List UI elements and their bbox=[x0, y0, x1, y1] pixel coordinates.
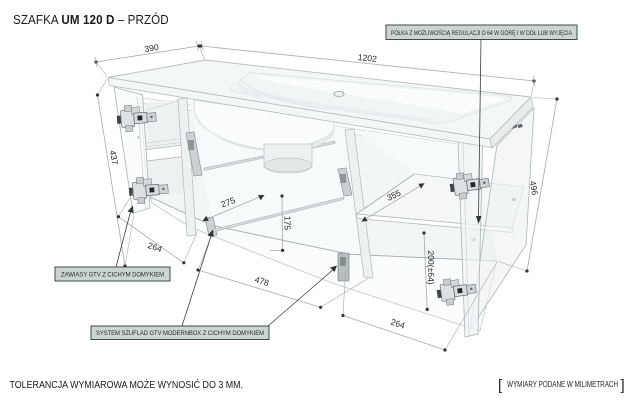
svg-text:PÓŁKA Z MOŻLIWOŚCIĄ REGULACJI: PÓŁKA Z MOŻLIWOŚCIĄ REGULACJI O 64 W GÓR… bbox=[391, 28, 573, 37]
svg-text:SZAFKA UM 120 D – PRZÓD: SZAFKA UM 120 D – PRZÓD bbox=[13, 11, 169, 27]
svg-text:175: 175 bbox=[283, 216, 293, 231]
svg-text:]: ] bbox=[621, 377, 625, 394]
svg-text:WYMIARY PODANE W MILIMETRACH: WYMIARY PODANE W MILIMETRACH bbox=[507, 380, 618, 389]
svg-text:ZAWIASY GTV Z CICHYM DOMYKIEM: ZAWIASY GTV Z CICHYM DOMYKIEM bbox=[61, 271, 164, 278]
svg-text:SYSTEM SZUFLAD GTV MODERNBOX Z: SYSTEM SZUFLAD GTV MODERNBOX Z CICHYM DO… bbox=[96, 330, 264, 337]
svg-text:1202: 1202 bbox=[357, 52, 377, 64]
svg-text:200(±64): 200(±64) bbox=[426, 250, 436, 284]
svg-text:TOLERANCJA WYMIAROWA MOŻE WYNO: TOLERANCJA WYMIAROWA MOŻE WYNOSIĆ DO 3 M… bbox=[10, 378, 244, 391]
